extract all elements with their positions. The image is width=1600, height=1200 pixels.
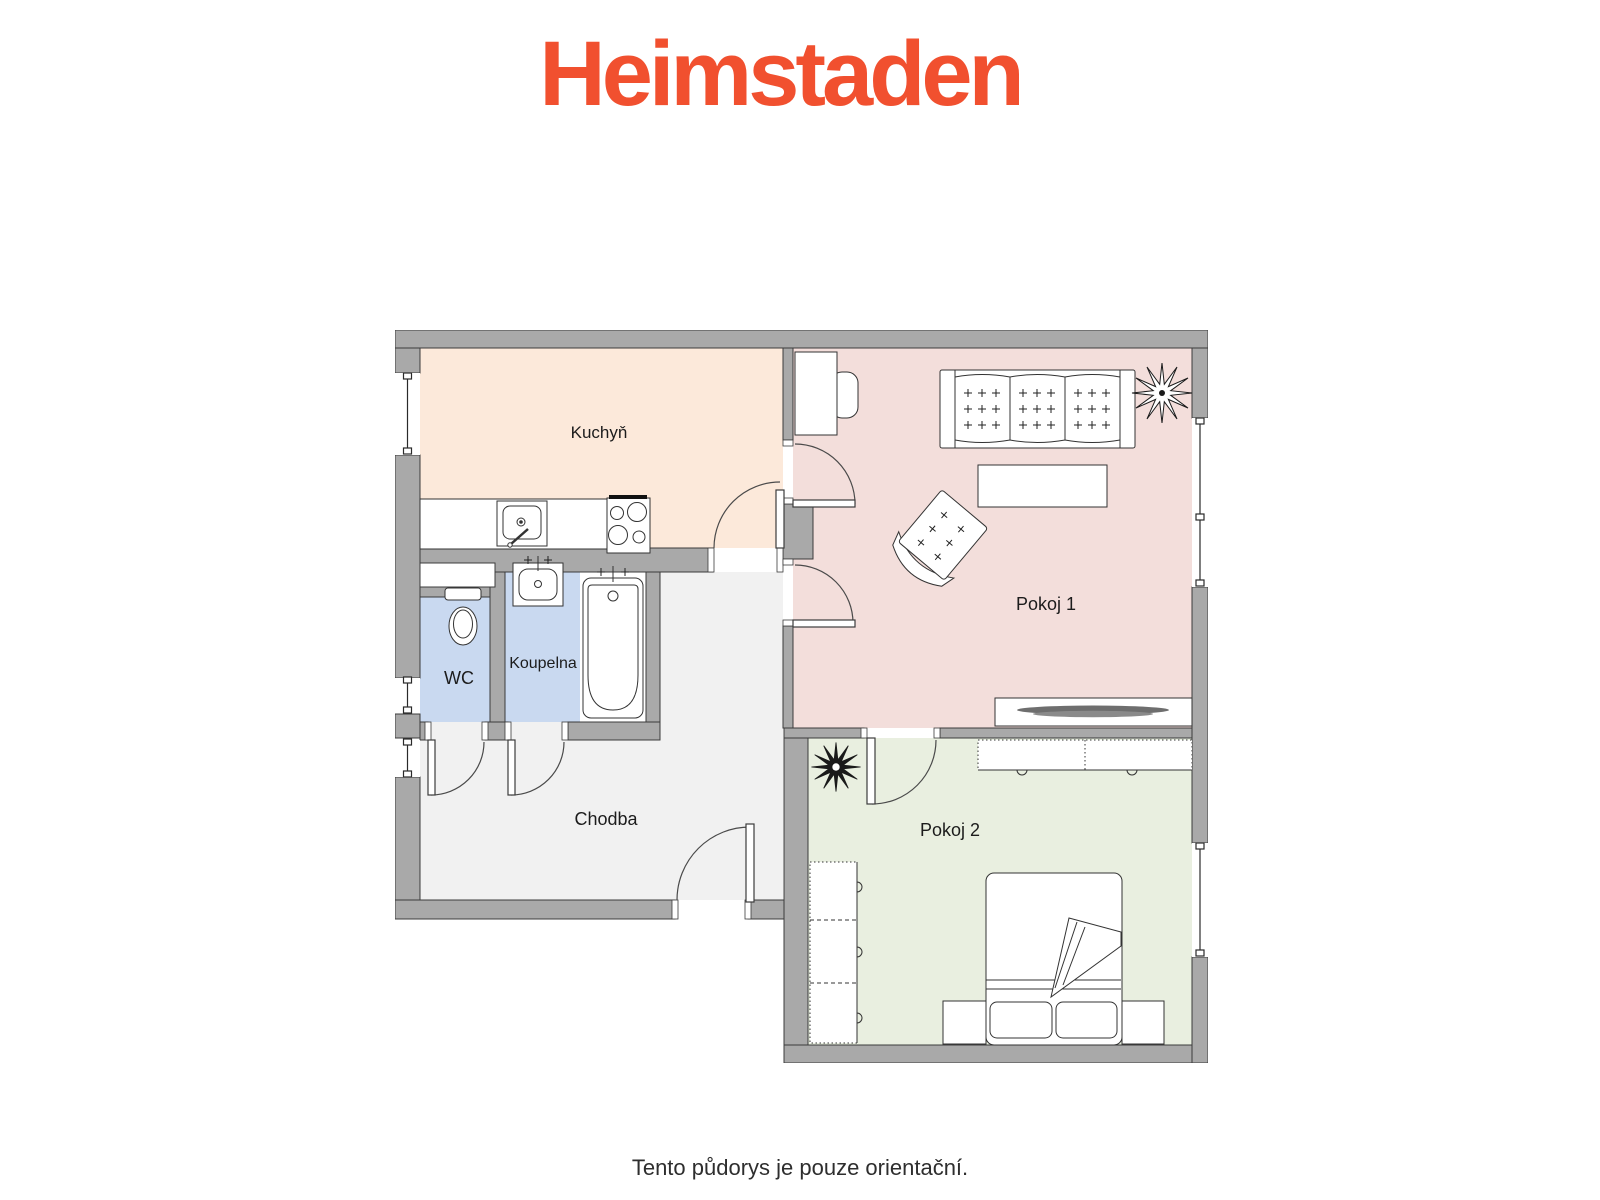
bathtub-icon bbox=[583, 566, 643, 718]
wall-left bbox=[395, 455, 420, 678]
sofa-icon bbox=[940, 370, 1135, 448]
pillow-icon bbox=[990, 1002, 1052, 1038]
door-leaf bbox=[776, 490, 784, 548]
window-kuchyn bbox=[395, 373, 420, 455]
room-label-chodba: Chodba bbox=[574, 809, 638, 829]
pillow-icon bbox=[1056, 1002, 1117, 1038]
brand-logo: Heimstaden bbox=[0, 28, 1580, 120]
nightstand-icon bbox=[1122, 1001, 1164, 1044]
tv-stand bbox=[995, 698, 1192, 726]
wall-door-pier bbox=[783, 504, 813, 559]
wall-left bbox=[395, 348, 420, 373]
sink-icon bbox=[497, 501, 547, 547]
wall-left-pier bbox=[395, 714, 420, 738]
wall-koupelna-bottom bbox=[568, 722, 660, 740]
door-leaf bbox=[793, 500, 855, 507]
kitchen-counter bbox=[420, 495, 650, 553]
door-leaf bbox=[746, 824, 754, 902]
room-label-koupelna: Koupelna bbox=[509, 655, 577, 672]
wall-bottom-chodba bbox=[748, 900, 785, 919]
room-label-kuchyn: Kuchyň bbox=[571, 423, 628, 442]
door-leaf bbox=[793, 620, 855, 627]
wall-chodba-pokoj1 bbox=[783, 626, 793, 728]
window-pokoj2 bbox=[1192, 843, 1208, 957]
nightstand-icon bbox=[943, 1001, 986, 1044]
door-leaf bbox=[867, 738, 875, 804]
door-leaf bbox=[508, 740, 515, 795]
wall-pokoj1-pokoj2 bbox=[940, 728, 1192, 738]
wall-chodba-pokoj2 bbox=[784, 728, 808, 1063]
wall-bottom-pokoj2 bbox=[784, 1045, 1208, 1063]
wall-top bbox=[395, 330, 1208, 348]
room-label-wc: WC bbox=[444, 668, 474, 688]
door-leaf bbox=[428, 740, 435, 795]
wall-niche bbox=[420, 563, 495, 587]
wall-left bbox=[395, 777, 420, 900]
wall-right bbox=[1192, 587, 1208, 843]
wall-bottom-chodba bbox=[395, 900, 675, 919]
tv-icon bbox=[1017, 706, 1169, 718]
floor-plan: Kuchyň Pokoj 1 Pokoj 2 WC Koupelna Chodb… bbox=[395, 330, 1208, 1063]
wall-right bbox=[1192, 348, 1208, 418]
wall-pokoj1-pokoj2 bbox=[784, 728, 864, 738]
double-bed-icon bbox=[986, 873, 1122, 1045]
window-chodba-a bbox=[395, 677, 420, 713]
window-chodba-b bbox=[395, 739, 420, 777]
wall-right bbox=[1192, 957, 1208, 1063]
wall-koupelna-right bbox=[646, 572, 660, 722]
wall-kuchyn-pokoj1-stub bbox=[783, 348, 793, 440]
disclaimer-text: Tento půdorys je pouze orientační. bbox=[0, 1155, 1600, 1181]
wall-wc-koupelna bbox=[490, 572, 505, 722]
stove-icon bbox=[607, 495, 650, 553]
desk-icon bbox=[795, 352, 837, 435]
room-label-pokoj1: Pokoj 1 bbox=[1016, 594, 1076, 614]
window-pokoj1 bbox=[1192, 418, 1208, 587]
washbasin-icon bbox=[513, 556, 563, 606]
room-label-pokoj2: Pokoj 2 bbox=[920, 820, 980, 840]
dresser-icon bbox=[978, 740, 1192, 775]
wall-wc-bottom bbox=[485, 722, 508, 740]
wardrobe-icon bbox=[810, 862, 862, 1043]
coffee-table-icon bbox=[978, 465, 1107, 507]
